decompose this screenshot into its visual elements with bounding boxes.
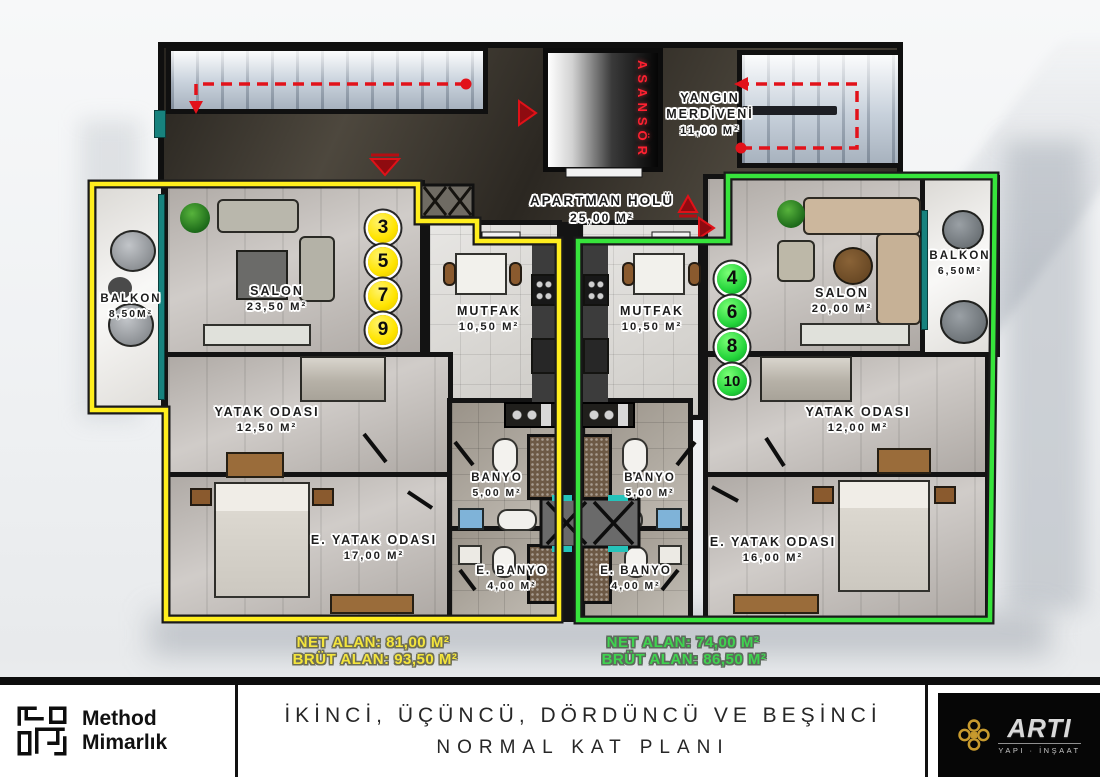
party-wall	[560, 222, 578, 622]
building-shadow-right	[1005, 140, 1085, 610]
room-area: 20,00 m²	[812, 302, 872, 317]
sofa	[876, 233, 921, 325]
method-logo-icon	[14, 703, 70, 759]
dresser	[733, 594, 819, 614]
bed	[300, 356, 386, 402]
room-name: BANYO	[471, 471, 523, 486]
room-name: SALON	[812, 285, 872, 301]
label-apartment-hall: APARTMAN HOLÜ 25,00 m²	[530, 192, 674, 226]
room-area: 4,00 m²	[476, 580, 548, 593]
washer-dryer	[581, 402, 635, 428]
sofa	[217, 199, 299, 233]
elevator-label: ASANSÖR	[635, 60, 650, 160]
room-name: E. BANYO	[476, 564, 548, 579]
plan-title-line2: NORMAL KAT PLANI	[436, 737, 729, 759]
architect-name-line1: Method	[82, 707, 167, 731]
unit-number-8: 8	[717, 332, 747, 362]
plant	[180, 203, 210, 233]
washer-dryer	[504, 402, 558, 428]
room-name: MUTFAK	[620, 303, 684, 319]
builder-subtitle: YAPI · İNŞAAT	[998, 743, 1080, 755]
builder-logo-block: ARTI YAPI · İNŞAAT	[938, 693, 1100, 777]
room-area: 10,50 m²	[620, 320, 684, 335]
desk	[877, 448, 931, 474]
bathtub	[603, 509, 643, 531]
architect-name-line2: Mimarlık	[82, 731, 167, 755]
kitchen-counter	[583, 240, 608, 418]
window-frame	[154, 110, 166, 138]
unit-number-3: 3	[368, 213, 398, 243]
room-name: SALON	[247, 283, 307, 299]
refrigerator	[531, 338, 557, 374]
room-area: 16,00 m²	[710, 551, 836, 566]
label-master-bedroom-left: E. YATAK ODASI 17,00 m²	[311, 532, 437, 564]
shower	[527, 434, 558, 500]
label-bathroom-left: BANYO 5,00 m²	[471, 471, 523, 500]
label-kitchen-left: MUTFAK 10,50 m²	[457, 303, 521, 335]
label-ensuite-bathroom-right: E. BANYO 4,00 m²	[600, 564, 672, 593]
room-name: MUTFAK	[457, 303, 521, 319]
unit-number-4: 4	[717, 264, 747, 294]
label-master-bedroom-right: E. YATAK ODASI 16,00 m²	[710, 534, 836, 566]
nightstand	[934, 486, 956, 504]
right-unit-net-area: NET ALAN: 74,00 M²	[607, 634, 760, 651]
shower	[581, 434, 612, 500]
chair	[622, 262, 635, 286]
toilet	[492, 438, 518, 474]
chair	[443, 262, 456, 286]
bed	[214, 482, 310, 598]
label-fire-escape: YANGIN MERDİVENİ 11,00 m²	[666, 90, 753, 138]
elevator-shaft: ASANSÖR	[543, 48, 663, 172]
right-unit-gross-area: BRÜT ALAN: 86,50 M²	[602, 651, 767, 668]
balcony-chair	[110, 230, 156, 272]
bed	[760, 356, 852, 402]
main-staircase	[166, 46, 488, 114]
unit-number-7: 7	[368, 281, 398, 311]
arti-logo-icon	[957, 718, 991, 752]
room-name: YATAK ODASI	[805, 404, 910, 420]
room-area: 5,00 m²	[624, 487, 676, 500]
balcony-chair	[942, 210, 984, 250]
dresser	[330, 594, 414, 614]
room-area: 12,50 m²	[214, 421, 319, 436]
unit-number-5: 5	[368, 247, 398, 277]
footer-divider	[925, 685, 928, 777]
room-name: YANGIN	[666, 90, 753, 106]
architect-logo-block: Method Mimarlık	[0, 685, 238, 777]
tv-unit	[203, 324, 311, 346]
room-area: 5,00 m²	[471, 487, 523, 500]
room-name: E. YATAK ODASI	[710, 534, 836, 550]
unit-number-6: 6	[717, 298, 747, 328]
bathtub	[497, 509, 537, 531]
room-area: 11,00 m²	[666, 124, 753, 139]
room-name: E. BANYO	[600, 564, 672, 579]
room-area: 25,00 m²	[530, 211, 674, 227]
room-area: 8,50m²	[100, 308, 161, 321]
room-area: 17,00 m²	[311, 549, 437, 564]
chair	[688, 262, 701, 286]
room-area: 10,50 m²	[457, 320, 521, 335]
label-living-right: SALON 20,00 m²	[812, 285, 872, 317]
nightstand	[312, 488, 334, 506]
tv-unit	[800, 323, 910, 346]
bed	[838, 480, 930, 592]
kitchen-counter	[532, 240, 557, 418]
sofa	[803, 197, 921, 235]
label-balcony-left: BALKON 8,50m²	[100, 292, 161, 321]
stair-handrail	[742, 106, 837, 115]
dining-table	[633, 253, 685, 295]
room-area: 12,00 m²	[805, 421, 910, 436]
chair	[509, 262, 522, 286]
toilet	[622, 438, 648, 474]
label-bedroom-left: YATAK ODASI 12,50 m²	[214, 404, 319, 436]
nightstand	[190, 488, 212, 506]
builder-name: ARTI	[1007, 715, 1071, 741]
nightstand	[812, 486, 834, 504]
label-kitchen-right: MUTFAK 10,50 m²	[620, 303, 684, 335]
sink	[458, 508, 484, 530]
room-area: 23,50 m²	[247, 300, 307, 315]
label-bathroom-right: BANYO 5,00 m²	[624, 471, 676, 500]
stove	[531, 274, 557, 306]
room-name: E. YATAK ODASI	[311, 532, 437, 548]
room-area: 6,50m²	[929, 265, 990, 278]
plant	[777, 200, 805, 228]
balcony-chair	[940, 300, 988, 344]
left-unit-gross-area: BRÜT ALAN: 93,50 M²	[293, 651, 458, 668]
room-name: BANYO	[624, 471, 676, 486]
armchair	[777, 240, 815, 282]
room-name: APARTMAN HOLÜ	[530, 192, 674, 210]
refrigerator	[583, 338, 609, 374]
sink	[656, 508, 682, 530]
dining-table	[455, 253, 507, 295]
floor-plan-canvas: ASANSÖR	[0, 0, 1100, 777]
unit-number-9: 9	[368, 315, 398, 345]
stove	[583, 274, 609, 306]
desk	[226, 452, 284, 478]
label-bedroom-right: YATAK ODASI 12,00 m²	[805, 404, 910, 436]
room-name: BALKON	[100, 292, 161, 307]
room-area: 4,00 m²	[600, 580, 672, 593]
balcony-glass-rail	[921, 210, 928, 330]
sink	[658, 545, 682, 565]
label-living-left: SALON 23,50 m²	[247, 283, 307, 315]
room-name: BALKON	[929, 249, 990, 264]
label-ensuite-bathroom-left: E. BANYO 4,00 m²	[476, 564, 548, 593]
plan-title: İKİNCİ, ÜÇÜNCÜ, DÖRDÜNCÜ VE BEŞİNCİ NORM…	[241, 685, 925, 777]
room-name: YATAK ODASI	[214, 404, 319, 420]
label-balcony-right: BALKON 6,50m²	[929, 249, 990, 278]
left-unit-net-area: NET ALAN: 81,00 M²	[297, 634, 450, 651]
coffee-table	[833, 247, 873, 285]
plan-title-line1: İKİNCİ, ÜÇÜNCÜ, DÖRDÜNCÜ VE BEŞİNCİ	[284, 704, 881, 728]
room-name: MERDİVENİ	[666, 106, 753, 122]
sink	[458, 545, 482, 565]
unit-number-10: 10	[717, 366, 747, 396]
title-block: Method Mimarlık İKİNCİ, ÜÇÜNCÜ, DÖRDÜNCÜ…	[0, 677, 1100, 777]
